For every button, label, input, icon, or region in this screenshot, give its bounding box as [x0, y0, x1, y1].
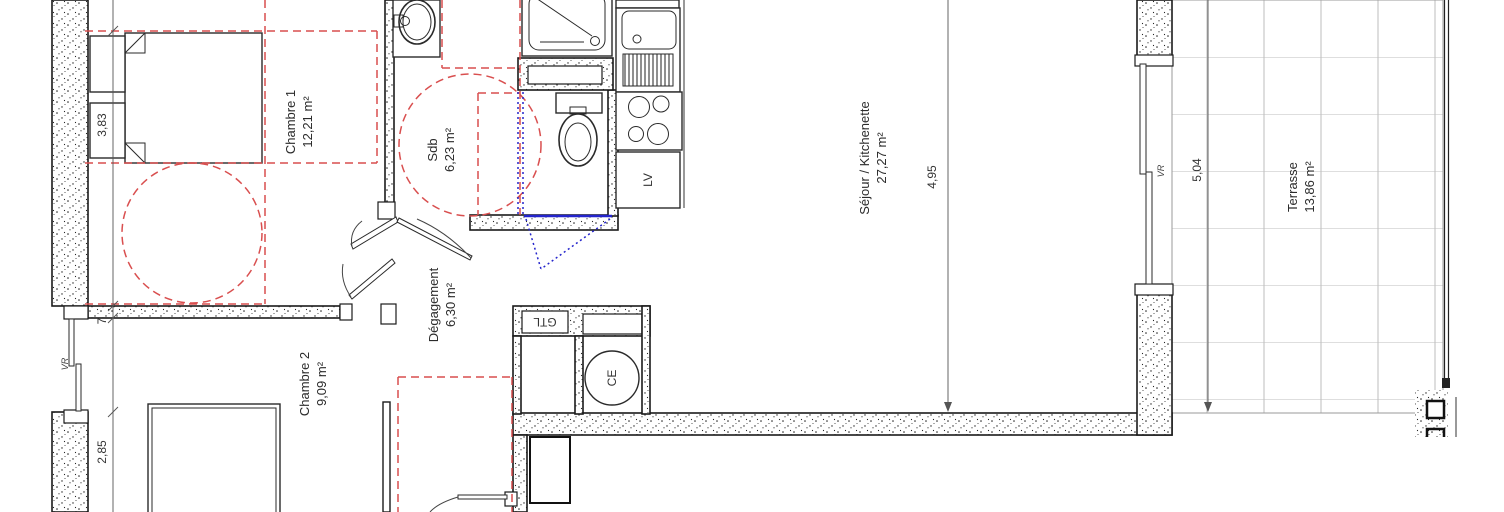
door-sdb: [397, 218, 472, 260]
wall-sejour-terrasse-upper: [1137, 0, 1172, 60]
cooktop-icon: [616, 92, 682, 150]
dim-sejour-width: 4,95: [925, 165, 939, 189]
chambre2-furniture: [148, 404, 280, 512]
technical-closets: GTL CE: [513, 306, 650, 414]
terrasse-corner-post: [1415, 390, 1456, 437]
svg-text:27,27 m²: 27,27 m²: [874, 132, 889, 184]
wall-sejour-terrasse-lower: [1137, 285, 1172, 435]
window-terrasse-bay: VR: [1135, 55, 1173, 295]
floorplan-canvas: GTL CE VR VR: [0, 0, 1504, 512]
kitchen-fixtures: LV: [616, 0, 684, 208]
bed-icon: [125, 33, 262, 163]
svg-text:6,30 m²: 6,30 m²: [443, 282, 458, 327]
washbasin-icon: [399, 0, 435, 44]
chambre1-furniture: [90, 33, 262, 163]
door-entry: [430, 495, 507, 512]
closet-shelf-box: [583, 314, 642, 334]
window-chambre2: VR: [60, 306, 88, 423]
post-icon: [1427, 401, 1444, 418]
dim-chambre2-height: 2,85: [95, 440, 109, 464]
toilet-icon: [556, 93, 602, 166]
kitchen-cabinet: [616, 0, 679, 8]
sliding-door-sash: [1140, 64, 1146, 174]
wall-sejour-bottom: [513, 413, 1172, 435]
drainboard-icon: [623, 54, 673, 86]
shower-bench-niche: [528, 66, 602, 84]
turning-circle-chambre1: [122, 163, 262, 303]
svg-text:Séjour / Kitchenette: Séjour / Kitchenette: [857, 101, 872, 214]
nightstand-icon: [90, 36, 125, 92]
svg-text:Terrasse: Terrasse: [1285, 162, 1300, 212]
lv-label: LV: [641, 173, 655, 187]
svg-text:13,86 m²: 13,86 m²: [1302, 161, 1317, 213]
floorplan-page: GTL CE VR VR: [0, 0, 1504, 512]
svg-text:Dégagement: Dégagement: [426, 267, 441, 342]
room-label-chambre2: Chambre 2 9,09 m²: [297, 352, 329, 416]
building-core-block: [530, 437, 570, 503]
terrasse-area: [1172, 0, 1456, 437]
door-chambre1: [351, 217, 398, 249]
room-label-sdb: Sdb 6,23 m²: [425, 127, 457, 172]
closet-wall-left: [513, 336, 521, 414]
shower-icon: [522, 0, 612, 56]
room-label-sejour: Séjour / Kitchenette 27,27 m²: [857, 101, 889, 214]
svg-text:6,23 m²: 6,23 m²: [442, 127, 457, 172]
doors: [340, 202, 517, 512]
exterior-wall-left-upper: [52, 0, 88, 306]
interior-wall-chambre1-chambre2: [88, 306, 340, 318]
dim-terrasse-width: 5,04: [1190, 158, 1204, 182]
dim-chambre1-height: 3,83: [95, 113, 109, 137]
blue-annotations: [518, 92, 612, 269]
vr-left-label: VR: [60, 357, 70, 370]
svg-text:9,09 m²: 9,09 m²: [314, 361, 329, 406]
door-chambre2: [342, 259, 395, 299]
vr-terrasse-label: VR: [1156, 164, 1166, 177]
svg-text:12,21 m²: 12,21 m²: [300, 96, 315, 148]
svg-text:Sdb: Sdb: [425, 138, 440, 161]
dim-wall-thickness: 7: [95, 317, 109, 324]
svg-text:Chambre 2: Chambre 2: [297, 352, 312, 416]
closet-wall-middle: [575, 336, 583, 414]
sliding-door-sash: [1146, 172, 1152, 284]
window-sash: [76, 364, 81, 411]
ce-label: CE: [605, 370, 619, 387]
svg-text:Chambre 1: Chambre 1: [283, 90, 298, 154]
room-label-degagement: Dégagement 6,30 m²: [426, 267, 458, 342]
room-label-chambre1: Chambre 1 12,21 m²: [283, 90, 315, 154]
partition-chambre2-entry: [383, 402, 390, 512]
exterior-wall-left-lower: [52, 412, 88, 512]
closet-wall-right: [642, 306, 650, 414]
gtl-label: GTL: [533, 315, 557, 329]
bed-icon: [148, 404, 280, 512]
